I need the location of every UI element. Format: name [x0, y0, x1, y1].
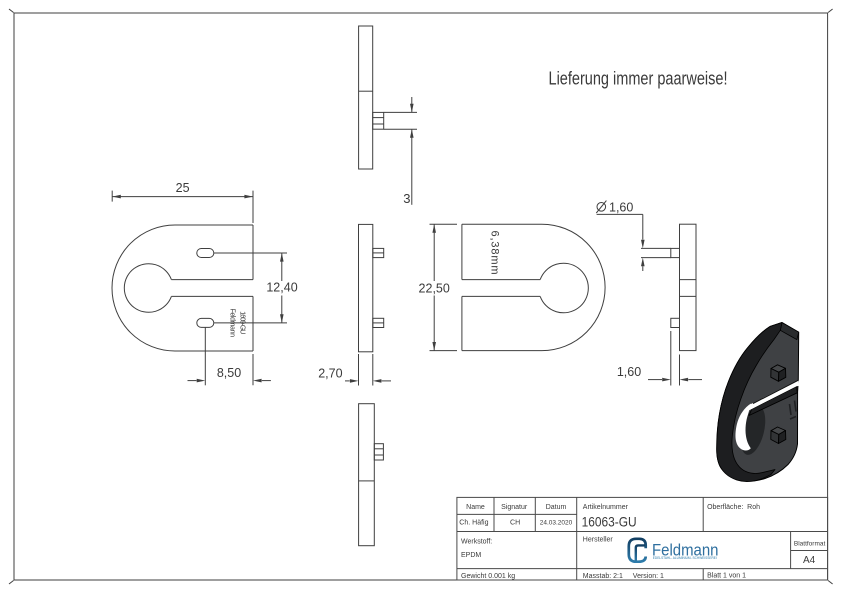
svg-text:16063-GU: 16063-GU	[582, 514, 637, 530]
svg-text:3: 3	[403, 191, 410, 206]
svg-text:Artikelnummer: Artikelnummer	[583, 504, 629, 511]
svg-text:Masstab: 2:1: Masstab: 2:1	[583, 573, 623, 580]
svg-text:CH: CH	[510, 520, 520, 527]
svg-text:EDELSTAHL- ALUMINIUM- SCHWEISS: EDELSTAHL- ALUMINIUM- SCHWEISSEREI	[653, 556, 717, 560]
svg-text:Datum: Datum	[546, 504, 567, 511]
svg-text:8,50: 8,50	[217, 366, 241, 380]
svg-text:6,38mm: 6,38mm	[489, 231, 501, 275]
svg-text:Blattformat: Blattformat	[794, 540, 826, 547]
svg-text:1609-GU: 1609-GU	[238, 311, 245, 334]
svg-text:12,40: 12,40	[266, 281, 297, 295]
svg-text:Version: 1: Version: 1	[633, 573, 664, 580]
svg-text:Werkstoff:: Werkstoff:	[461, 539, 492, 546]
svg-text:Ch. Häfig: Ch. Häfig	[459, 520, 488, 527]
svg-text:Gewicht 0.001 kg: Gewicht 0.001 kg	[461, 573, 515, 580]
svg-text:1,60: 1,60	[617, 365, 641, 379]
svg-text:22,50: 22,50	[419, 281, 450, 295]
svg-text:24.03.2020: 24.03.2020	[540, 520, 573, 527]
svg-text:Oberfläche: Roh: Oberfläche: Roh	[707, 504, 760, 511]
svg-text:EPDM: EPDM	[461, 552, 481, 559]
svg-text:A4: A4	[803, 555, 816, 566]
svg-text:Lieferung immer paarweise!: Lieferung immer paarweise!	[549, 69, 728, 89]
svg-text:1,60: 1,60	[609, 201, 633, 215]
svg-text:Name: Name	[466, 504, 485, 511]
svg-text:Feldmann: Feldmann	[228, 309, 235, 338]
svg-text:25: 25	[176, 181, 190, 195]
svg-text:Signatur: Signatur	[501, 504, 528, 511]
svg-text:Hersteller: Hersteller	[583, 537, 614, 544]
svg-text:Blatt 1 von 1: Blatt 1 von 1	[707, 573, 746, 580]
svg-text:2,70: 2,70	[318, 366, 342, 380]
